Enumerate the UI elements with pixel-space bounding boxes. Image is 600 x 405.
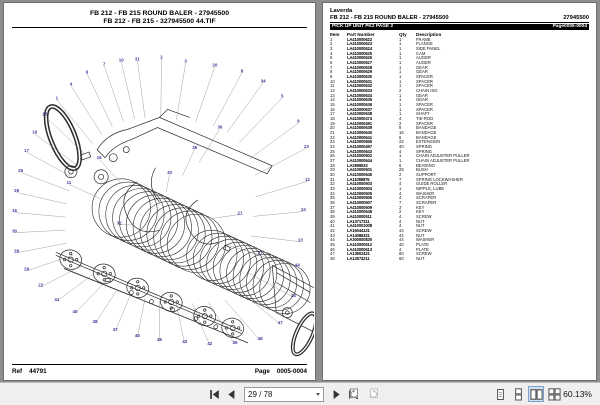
part-number-link[interactable]: LA12574211 <box>347 257 395 262</box>
zoom-level-label: 60.13% <box>563 383 592 405</box>
callout-number[interactable]: 11 <box>67 180 72 185</box>
callout-number[interactable]: 27 <box>258 251 263 256</box>
callout-number[interactable]: 19 <box>32 130 37 135</box>
callout-number[interactable]: 41 <box>54 297 59 302</box>
page-number-value: 29 / 78 <box>248 390 272 399</box>
callout-number[interactable]: 31 <box>135 56 140 61</box>
two-page-icon <box>530 388 543 401</box>
callout-number[interactable]: 43 <box>182 339 187 344</box>
callout-number[interactable]: 2 <box>160 54 163 59</box>
callout-number[interactable]: 30 <box>12 228 17 233</box>
exploded-parts-diagram: 3123208345923122413441447483942434546373… <box>8 49 314 361</box>
callout-number[interactable]: 7 <box>103 61 106 66</box>
footer-ref: Ref44791 <box>12 368 47 375</box>
callout-number[interactable]: 25 <box>18 168 23 173</box>
next-view-button[interactable] <box>365 386 380 402</box>
viewer-toolbar: 29 / 78 <box>0 382 600 405</box>
callout-number[interactable]: 40 <box>72 309 77 314</box>
callout-number[interactable]: 16 <box>12 208 17 213</box>
model-code: 27945500 <box>563 15 589 21</box>
parts-list-titlebar: FB 212 - FB 215 ROUND BALER - 27945500 2… <box>330 15 589 23</box>
section-name: PICK UP UNIT PK2 PAGE 2 <box>332 24 393 30</box>
callout-number[interactable]: 34 <box>261 78 266 83</box>
first-page-button[interactable] <box>207 386 222 402</box>
callout-number[interactable]: 37 <box>113 327 118 332</box>
callout-number[interactable]: 4 <box>70 81 73 86</box>
header-rule <box>12 27 307 28</box>
callout-number[interactable]: 14 <box>291 293 296 298</box>
qty-cell: 60 <box>399 257 412 262</box>
previous-page-button[interactable] <box>224 386 239 402</box>
diagram-title-line2: FB 212 - FB 215 - 327945500 44.TIF <box>4 18 315 26</box>
next-view-icon <box>366 388 379 400</box>
col-part-number: Part Number <box>347 32 395 37</box>
callout-number[interactable]: 44 <box>295 263 300 268</box>
page-number-combobox[interactable]: 29 / 78 <box>244 387 324 402</box>
callout-number[interactable]: 21 <box>238 210 243 215</box>
diagram-title-line1: FB 212 - FB 215 ROUND BALER - 27945500 <box>4 10 315 18</box>
callout-number[interactable]: 28 <box>14 249 19 254</box>
view-history-group <box>345 383 380 405</box>
callout-number[interactable]: 12 <box>305 177 310 182</box>
previous-page-icon <box>226 389 237 400</box>
callout-number[interactable]: 39 <box>233 340 238 345</box>
two-page-layout-button[interactable] <box>528 386 544 402</box>
callout-number[interactable]: 3 <box>184 58 187 63</box>
callout-number[interactable]: 45 <box>157 337 162 342</box>
section-page-ref: Page0005-0004 <box>553 24 587 30</box>
callout-number[interactable]: 10 <box>119 57 124 62</box>
callout-number[interactable]: 46 <box>135 333 140 338</box>
callout-number[interactable]: 13 <box>298 237 303 242</box>
previous-view-icon <box>346 388 359 400</box>
two-column-icon <box>548 388 561 401</box>
callout-number[interactable]: 20 <box>212 62 217 67</box>
callout-number[interactable]: 9 <box>297 119 300 124</box>
next-page-button[interactable] <box>329 386 344 402</box>
diagram-linework <box>39 102 314 357</box>
col-qty: Qty <box>399 32 412 37</box>
col-item: Item <box>330 32 343 37</box>
single-page-icon <box>494 388 507 401</box>
page-navigation-group: 29 / 78 <box>207 383 361 405</box>
single-page-layout-button[interactable] <box>492 386 508 402</box>
callout-number[interactable]: 36 <box>217 125 222 130</box>
callout-number[interactable]: 17 <box>24 148 29 153</box>
page-title-block: FB 212 - FB 215 ROUND BALER - 27945500 F… <box>4 10 315 26</box>
callout-number[interactable]: 24 <box>301 207 306 212</box>
next-page-icon <box>331 389 342 400</box>
page-layout-group <box>492 383 562 405</box>
one-column-layout-button[interactable] <box>510 386 526 402</box>
pdf-viewer-window: FB 212 - FB 215 ROUND BALER - 27945500 F… <box>0 0 600 405</box>
callout-number[interactable]: 18 <box>42 112 47 117</box>
page-footer: Ref44791 Page0005-0004 <box>12 364 307 375</box>
footer-page: Page0005-0004 <box>255 368 307 375</box>
callout-number[interactable]: 22 <box>38 283 43 288</box>
callout-number[interactable]: 23 <box>304 144 309 149</box>
callout-number[interactable]: 8 <box>241 68 244 73</box>
callout-number[interactable]: 6 <box>86 69 89 74</box>
table-row: 48LA1257421160NUT <box>330 257 589 262</box>
callout-number[interactable]: 48 <box>258 336 263 341</box>
section-header-selected[interactable]: PICK UP UNIT PK2 PAGE 2 Page0005-0004 <box>330 24 589 30</box>
callout-number[interactable]: 26 <box>14 188 19 193</box>
one-column-icon <box>512 388 525 401</box>
first-page-icon <box>209 389 220 400</box>
callout-number[interactable]: 32 <box>117 220 122 225</box>
table-header-row: Item Part Number Qty Description <box>330 32 589 37</box>
col-description: Description <box>416 32 589 37</box>
document-page-left: FB 212 - FB 215 ROUND BALER - 27945500 F… <box>3 2 316 381</box>
diagram-callout-labels: 3123208345923122413441447483942434546373… <box>12 54 310 346</box>
parts-list-title: FB 212 - FB 215 ROUND BALER - 27945500 <box>330 15 449 21</box>
callout-number[interactable]: 42 <box>207 341 212 346</box>
callout-number[interactable]: 38 <box>93 319 98 324</box>
callout-number[interactable]: 1 <box>56 96 59 101</box>
callout-number[interactable]: 5 <box>281 94 284 99</box>
callout-number[interactable]: 47 <box>278 320 283 325</box>
document-page-right: Laverda FB 212 - FB 215 ROUND BALER - 27… <box>322 2 597 381</box>
parts-table-body: 1LA4100006221FRAME2LA4100006231FLANGE3LA… <box>330 38 589 262</box>
two-column-layout-button[interactable] <box>546 386 562 402</box>
callout-number[interactable]: 35 <box>192 145 197 150</box>
chevron-down-icon <box>316 393 320 396</box>
callout-number[interactable]: 15 <box>97 155 102 160</box>
previous-view-button[interactable] <box>345 386 360 402</box>
item-cell: 48 <box>330 257 343 262</box>
description-cell: NUT <box>416 257 589 262</box>
callout-number[interactable]: 29 <box>24 267 29 272</box>
callout-number[interactable]: 33 <box>167 170 172 175</box>
